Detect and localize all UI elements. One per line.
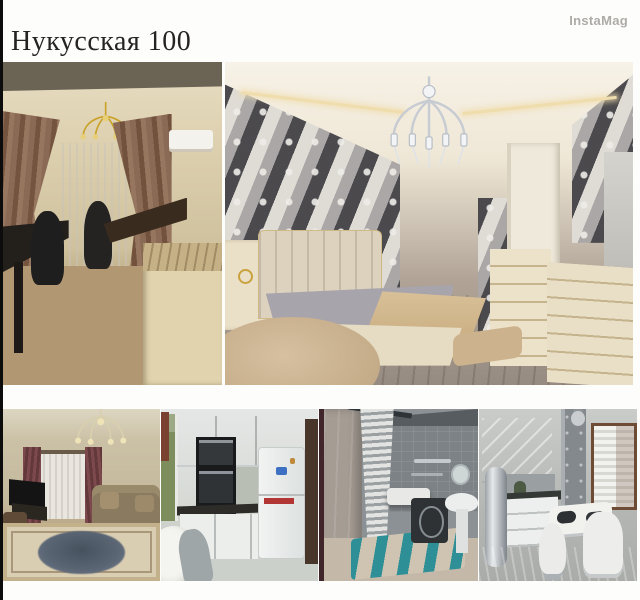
cabinet-marble-top xyxy=(143,243,222,271)
white-chair-right xyxy=(583,512,623,577)
washer-door xyxy=(419,506,443,538)
collage-page: Нукусская 100 InstaMag xyxy=(0,0,640,600)
placemat-1 xyxy=(556,510,575,523)
sink-pedestal xyxy=(456,509,469,554)
gold-ring-handle xyxy=(238,269,253,284)
window-with-blinds xyxy=(591,423,637,511)
bedroom-dresser xyxy=(547,262,633,385)
office-chair-left xyxy=(31,211,64,285)
photo-bathroom xyxy=(319,409,478,581)
fridge-blue-magnet xyxy=(276,467,286,475)
oven xyxy=(199,474,233,502)
photo-living-room xyxy=(3,409,160,581)
study-cream-cabinet xyxy=(143,243,222,385)
page-title: Нукусская 100 xyxy=(11,26,191,58)
photo-kitchen-grey xyxy=(479,409,637,581)
study-desk-leg xyxy=(14,262,23,352)
photo-study-room xyxy=(3,62,222,385)
fridge-door-split xyxy=(258,494,305,496)
towel-bar-top xyxy=(414,459,451,463)
photo-bedroom xyxy=(225,62,633,385)
photo-kitchen-fridge xyxy=(161,409,318,581)
sofa-pillow-2 xyxy=(135,495,154,512)
sofa-pillow-1 xyxy=(100,492,119,509)
pendant-light xyxy=(571,411,585,426)
bathroom-left-wall xyxy=(324,409,362,550)
crystal-chandelier xyxy=(376,68,482,191)
ornate-rug xyxy=(3,523,160,581)
fridge-energy-label xyxy=(290,458,295,464)
towel-bar-bottom xyxy=(411,473,443,476)
rug-medallion xyxy=(38,531,126,574)
white-stool-left xyxy=(539,523,566,575)
shower-curtain xyxy=(360,409,393,547)
microwave xyxy=(199,443,233,464)
kitchen-curtain-sliver xyxy=(161,412,169,460)
study-ceiling-band xyxy=(3,62,222,91)
air-conditioner xyxy=(169,130,213,153)
washing-machine xyxy=(411,498,448,543)
instamag-watermark: InstaMag xyxy=(569,13,628,28)
dark-right-edge xyxy=(305,419,318,563)
refrigerator xyxy=(258,447,305,559)
fridge-red-magnet-strip xyxy=(264,498,294,504)
